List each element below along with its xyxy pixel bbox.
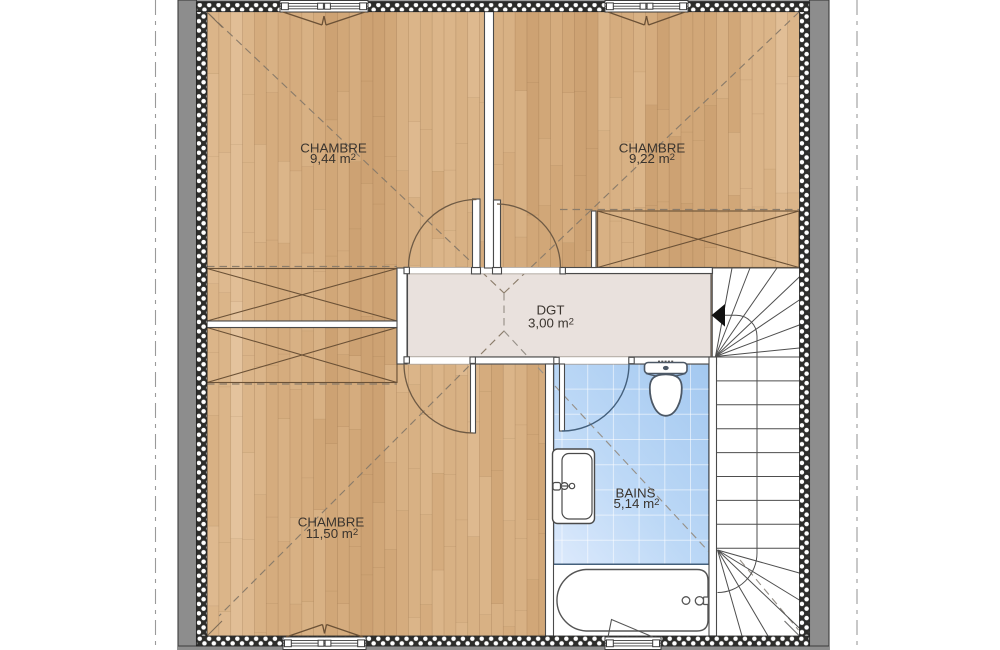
svg-text:3,00 m2: 3,00 m2 (528, 316, 574, 331)
svg-text:5,14 m2: 5,14 m2 (614, 496, 660, 511)
svg-text:11,50 m2: 11,50 m2 (306, 526, 358, 541)
svg-text:9,44 m2: 9,44 m2 (310, 151, 356, 166)
svg-text:9,22 m2: 9,22 m2 (629, 151, 675, 166)
